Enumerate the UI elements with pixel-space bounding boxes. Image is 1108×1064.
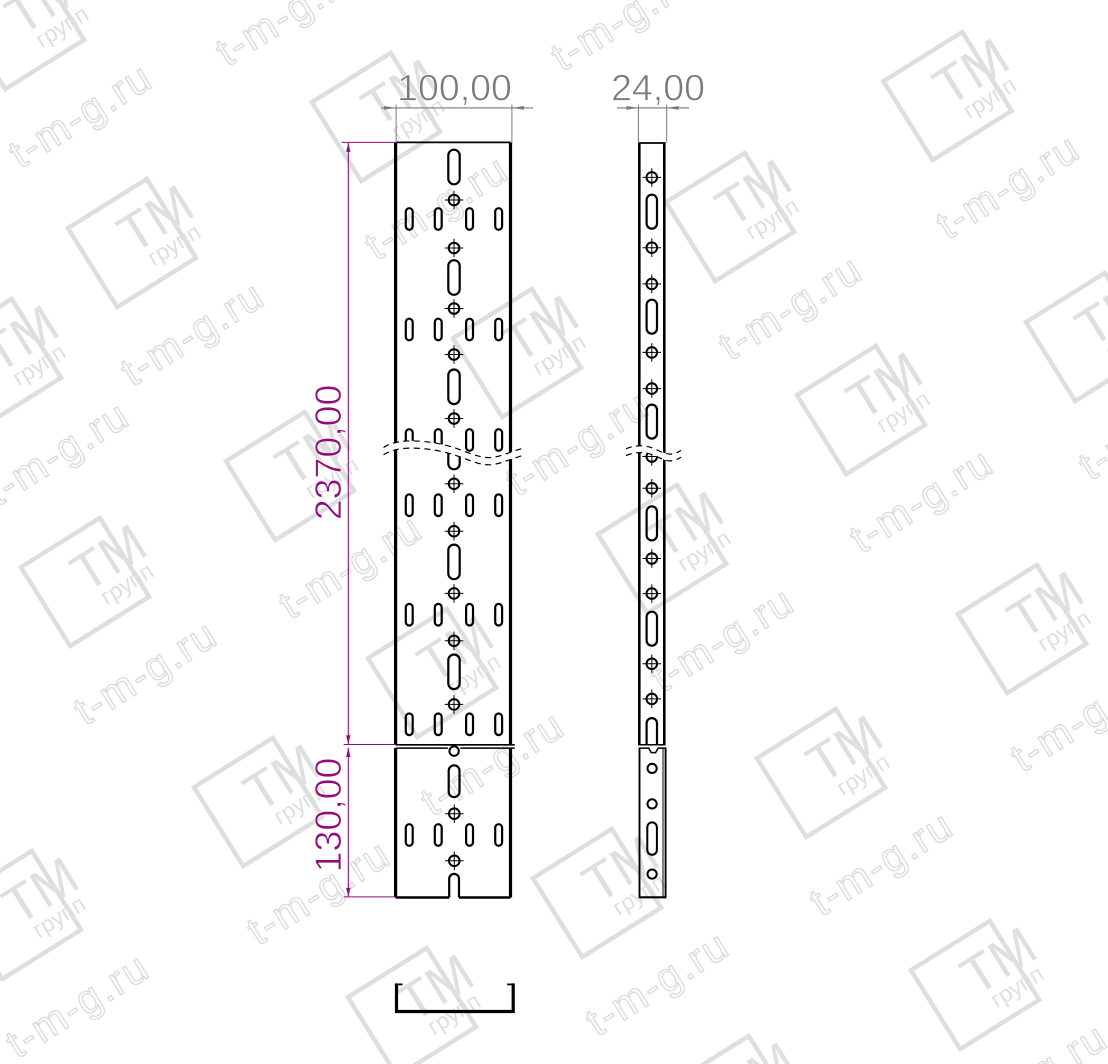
svg-text:130,00: 130,00 [307,758,349,873]
svg-text:2370,00: 2370,00 [307,385,349,521]
svg-text:100,00: 100,00 [397,67,512,109]
svg-text:24,00: 24,00 [611,67,705,109]
